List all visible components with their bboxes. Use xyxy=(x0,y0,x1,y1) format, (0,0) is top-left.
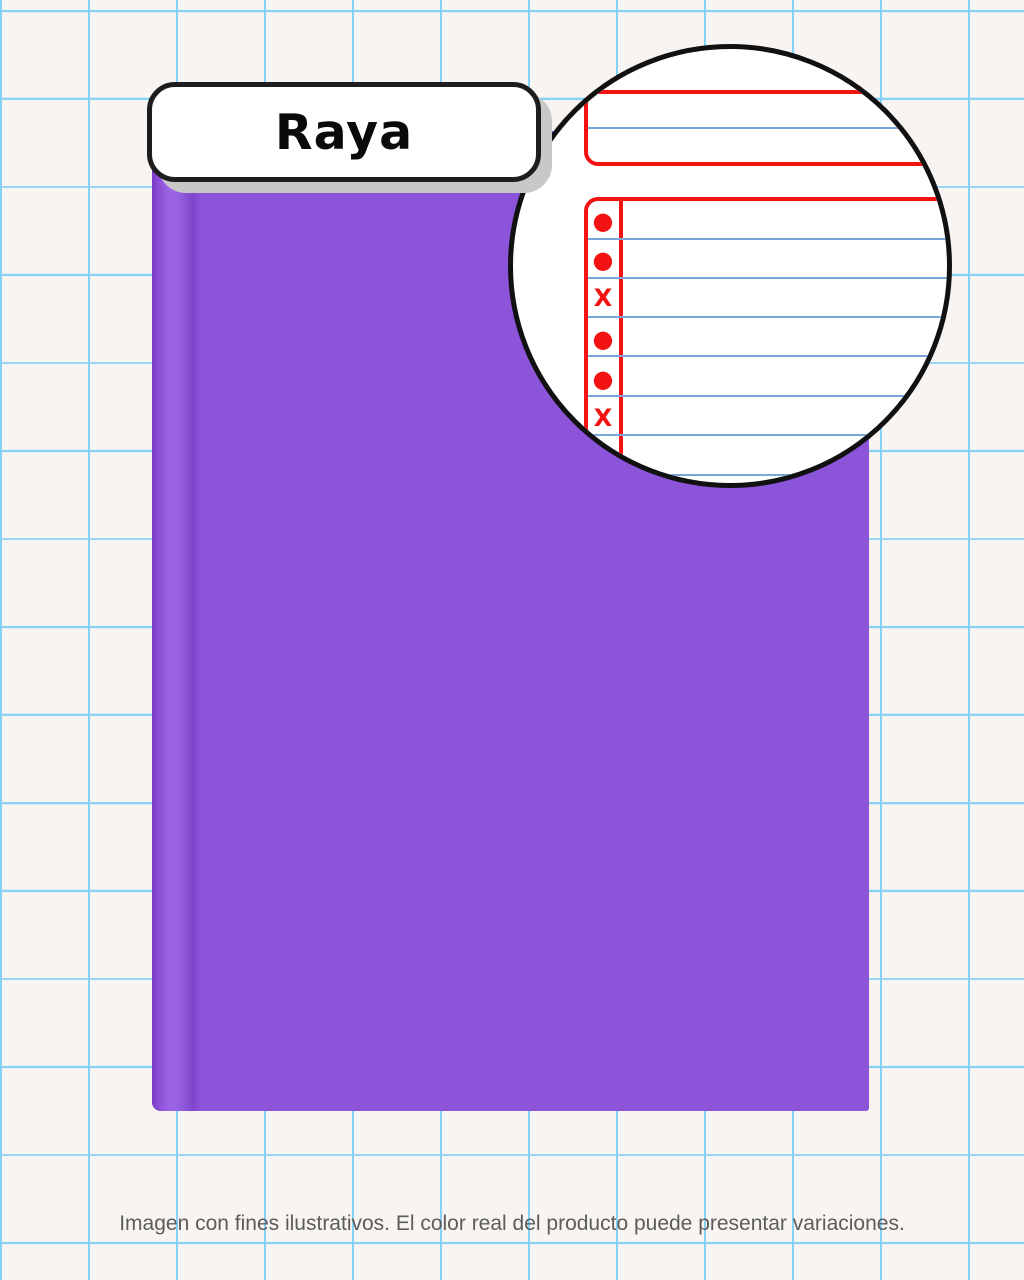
product-label-text: Raya xyxy=(275,104,413,161)
ruled-line xyxy=(588,316,952,318)
dot-mark-icon: ● xyxy=(575,206,631,236)
disclaimer-caption: Imagen con fines ilustrativos. El color … xyxy=(0,1212,1024,1236)
x-mark-icon: X xyxy=(575,403,631,433)
ruled-line xyxy=(588,355,952,357)
ruled-line xyxy=(588,277,952,279)
ruled-line xyxy=(588,127,952,129)
ruled-line xyxy=(588,434,952,436)
product-label: Raya xyxy=(147,82,541,182)
product-illustration-page: ● ● X ● ● X Raya Imagen con fines ilustr… xyxy=(0,0,1024,1280)
ruled-line xyxy=(588,395,952,397)
notebook-spine xyxy=(152,131,200,1111)
dot-mark-icon: ● xyxy=(575,245,631,275)
dot-mark-icon: ● xyxy=(575,324,631,354)
ruled-line xyxy=(588,238,952,240)
x-mark-icon: X xyxy=(575,283,631,313)
dot-mark-icon: ● xyxy=(575,364,631,394)
paper-body-box xyxy=(584,197,952,488)
ruled-line xyxy=(588,474,952,476)
magnifier-circle: ● ● X ● ● X xyxy=(508,44,952,488)
